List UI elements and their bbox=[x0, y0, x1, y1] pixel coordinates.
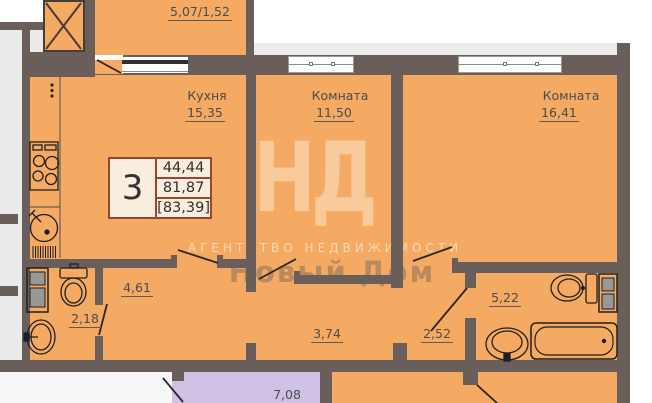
bathroom-toilet-icon bbox=[551, 274, 597, 303]
wc-washing-machine-icon bbox=[27, 268, 48, 312]
total-area-value: [83,39] bbox=[157, 197, 210, 217]
kitchen-area-label: 15,35 bbox=[185, 106, 225, 122]
living-area-value: 44,44 bbox=[157, 159, 210, 177]
vent-dots-icon bbox=[50, 83, 53, 97]
wc-toilet-icon bbox=[60, 264, 87, 306]
bathroom-area-label: 5,22 bbox=[489, 291, 521, 307]
bathroom-washing-machine-icon bbox=[599, 274, 617, 312]
apartment-area-value: 81,87 bbox=[157, 177, 210, 197]
floor-plan: НД АГЕНТСТВО НЕДВИЖИМОСТИ Новый Дом bbox=[0, 0, 652, 403]
room2-area-label: 16,41 bbox=[539, 106, 579, 122]
stove-icon bbox=[30, 142, 59, 190]
kitchen-name-label: Кухня bbox=[187, 89, 226, 103]
corridor2-area-label: 2,52 bbox=[421, 327, 453, 343]
corridor1-area-label: 3,74 bbox=[311, 327, 343, 343]
room1-door-swing bbox=[259, 259, 296, 279]
hall-area-label: 4,61 bbox=[121, 281, 153, 297]
bathtub-icon bbox=[531, 323, 617, 359]
room1-name-label: Комната bbox=[312, 89, 369, 103]
bathroom-door-swing bbox=[431, 288, 467, 331]
entrance-door-swing bbox=[477, 385, 497, 403]
kitchen-door-swing bbox=[178, 250, 218, 263]
stairwell-door-swing bbox=[163, 378, 183, 402]
room1-area-label: 11,50 bbox=[314, 106, 354, 122]
kitchen-sink-icon bbox=[29, 210, 58, 242]
balcony-area-label: 5,07/1,52 bbox=[168, 5, 232, 21]
apartment-info-box: 3 44,44 81,87 [83,39] bbox=[108, 157, 212, 219]
room2-name-label: Комната bbox=[543, 89, 600, 103]
wc-area-label: 2,18 bbox=[69, 312, 101, 328]
wc-sink-icon bbox=[24, 320, 55, 354]
room2-door-swing bbox=[413, 247, 452, 261]
lobby-area-label: 7,08 bbox=[271, 388, 303, 403]
hatch-x-icon bbox=[46, 3, 81, 49]
bathroom-sink-icon bbox=[486, 328, 528, 361]
room-count: 3 bbox=[110, 159, 157, 217]
dish-rack-icon bbox=[33, 246, 56, 258]
balcony-door-swing bbox=[97, 60, 121, 73]
